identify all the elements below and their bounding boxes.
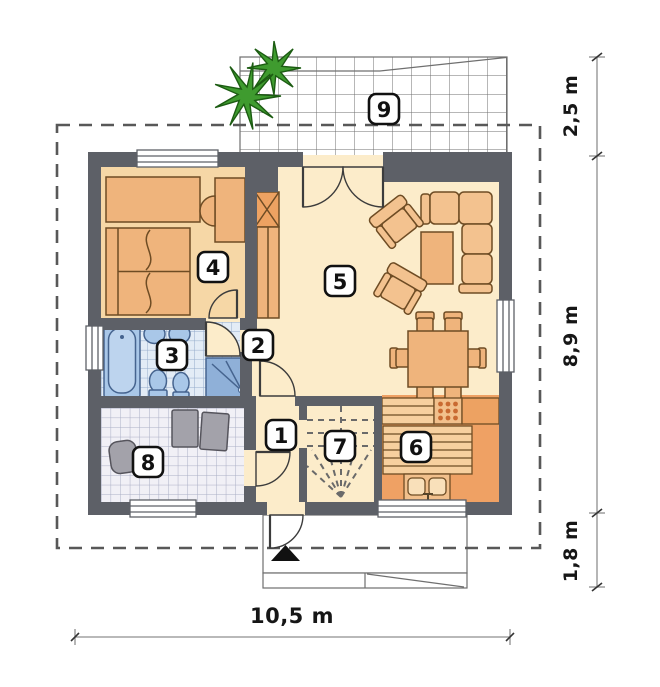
- room-label-4: 4: [198, 252, 228, 282]
- svg-text:7: 7: [333, 435, 348, 459]
- room-label-1: 1: [266, 420, 296, 450]
- bidet: [173, 373, 189, 398]
- room-label-2: 2: [243, 330, 273, 360]
- room-label-9: 9: [369, 94, 399, 124]
- svg-text:8: 8: [141, 451, 156, 475]
- hall-wardrobes: [255, 192, 279, 318]
- wardrobe: [106, 177, 200, 222]
- dim-right-top: 2,5 m: [560, 75, 582, 138]
- desk: [215, 178, 245, 242]
- dim-right-middle: 8,9 m: [560, 305, 582, 368]
- window-bathroom: [86, 326, 103, 370]
- window-bedroom: [137, 150, 218, 167]
- svg-text:3: 3: [165, 344, 180, 368]
- room-label-3: 3: [157, 340, 187, 370]
- bathtub: [104, 323, 140, 398]
- svg-text:1: 1: [274, 424, 289, 448]
- window-living: [497, 300, 514, 372]
- double-bed: [106, 228, 190, 315]
- toilet: [149, 370, 167, 397]
- coffee-table: [421, 232, 453, 284]
- dim-bottom: 10,5 m: [250, 604, 334, 628]
- room-label-6: 6: [401, 432, 431, 462]
- dim-right-bottom: 1,8 m: [560, 520, 582, 583]
- dimension-bottom: [71, 629, 514, 645]
- floor-plan: 1 2 3 4 5 6 7 8: [0, 0, 660, 687]
- svg-text:5: 5: [333, 270, 348, 294]
- svg-text:2: 2: [251, 334, 266, 358]
- stove: [434, 398, 462, 424]
- floor-plan-page: 1 2 3 4 5 6 7 8: [0, 0, 660, 687]
- dimension-right: [589, 53, 605, 591]
- svg-text:4: 4: [206, 256, 221, 280]
- wall-corner-step: [383, 167, 512, 182]
- room-label-8: 8: [133, 447, 163, 477]
- kitchen-sink: [404, 474, 450, 500]
- svg-text:9: 9: [377, 98, 392, 122]
- dryer: [200, 412, 230, 451]
- washing-machine: [172, 410, 198, 447]
- svg-text:6: 6: [409, 436, 424, 460]
- kitchen-counter: [382, 398, 434, 424]
- room-label-7: 7: [325, 431, 355, 461]
- room-label-5: 5: [325, 266, 355, 296]
- window-utility: [130, 500, 196, 517]
- window-kitchen: [378, 500, 466, 517]
- dining-table: [408, 331, 468, 387]
- kitchen-counter: [462, 398, 499, 424]
